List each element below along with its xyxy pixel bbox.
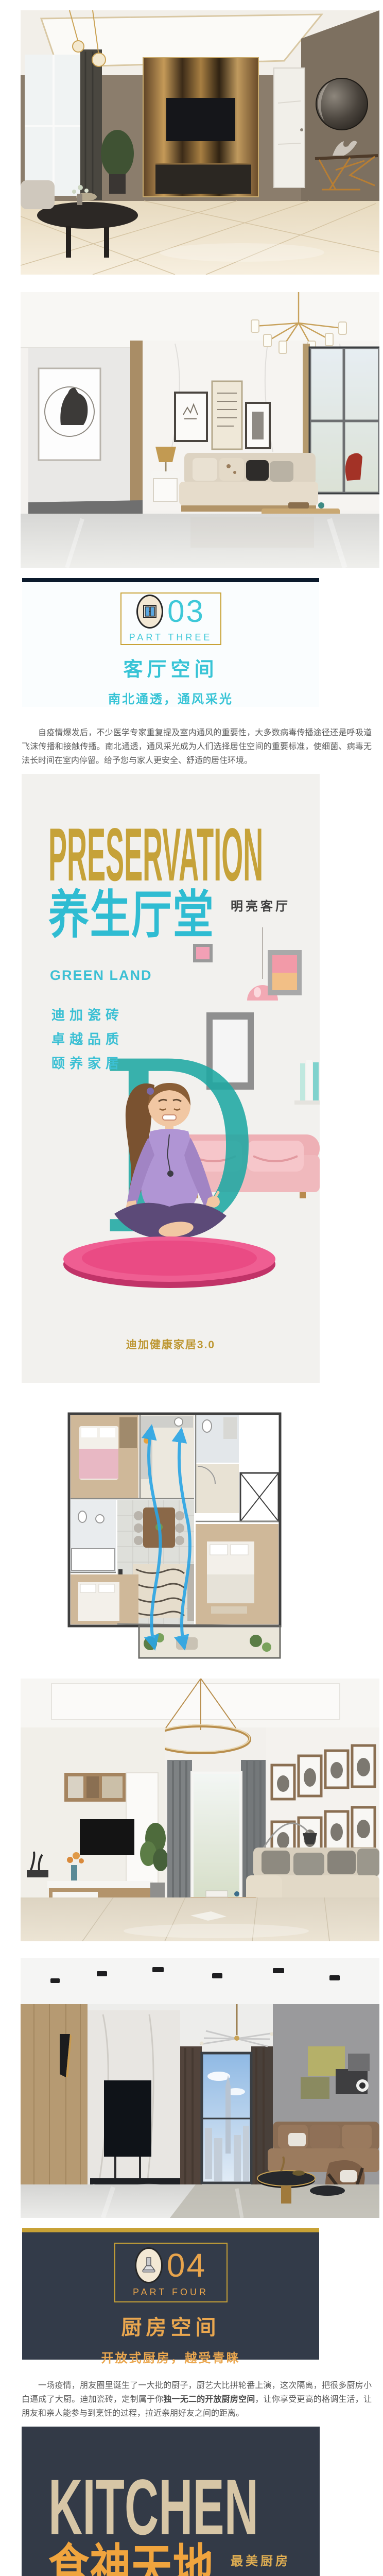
poster-preservation: D: [22, 774, 320, 1383]
living-room-photo-ring-chandelier: [21, 1679, 379, 1941]
poster-slogan-1: 迪加瓷砖: [51, 1008, 124, 1022]
living-room-photo-bright-render: [21, 292, 379, 568]
wall-shelf-books: [294, 1060, 320, 1105]
floor-plan-render: [22, 1394, 320, 1668]
sofa-edge: [21, 180, 55, 209]
living-room-photo-brown-render: [21, 10, 379, 275]
section04-subtitle: 开放式厨房，越受青睐: [22, 2348, 319, 2366]
living-room-photo-4-render: [21, 1958, 379, 2218]
section03-title: 客厅空间: [22, 653, 319, 682]
poster-slogan-2: 卓越品质: [51, 1032, 124, 1046]
section04-number: 04: [167, 2249, 206, 2282]
paragraph-kitchen-bold: 独一无二的开放厨房空间: [163, 2395, 255, 2404]
section03-part-label: PART THREE: [129, 632, 213, 643]
living-room-photo-bright: [21, 292, 379, 568]
range-hood-icon: [135, 2247, 163, 2283]
section04-top-bar: [22, 2228, 319, 2232]
poster-title-cn: 食神天地: [48, 2543, 258, 2576]
section03-top-bar: [22, 578, 319, 582]
tv: [104, 2080, 151, 2157]
window-with-sheer-curtain: [25, 49, 102, 200]
section04-title: 厨房空间: [22, 2311, 319, 2341]
marble-tv-wall: [88, 2010, 180, 2196]
poster-kitchen: K: [22, 2427, 320, 2576]
rug: [170, 2184, 379, 2218]
white-door: [274, 68, 305, 188]
section04-badge-box: 04 PART FOUR: [114, 2243, 228, 2302]
marble-tv-feature-wall: [143, 58, 258, 197]
section03-header: 03 PART THREE 客厅空间 南北通透，通风采光: [22, 582, 319, 707]
living-room-photo-brown: [21, 10, 379, 275]
poster-tag: 最美厨房: [231, 2555, 290, 2568]
poster-tag: 明亮客厅: [231, 901, 290, 913]
tv: [80, 1819, 134, 1855]
window-icon: [136, 595, 163, 629]
living-room-photo-modern-dark: [21, 1958, 379, 2218]
poster-footer: 迪加健康家居3.0: [22, 1336, 320, 1352]
horse-artwork: [39, 368, 100, 460]
tv: [166, 98, 235, 141]
article-page: 03 PART THREE 客厅空间 南北通透，通风采光 自疫情爆发后，不少医学…: [0, 0, 383, 2576]
poster-title-en: PRESERVATION: [48, 817, 320, 892]
living-room-photo-3-render: [21, 1679, 379, 1941]
poster-title-cn: 养生厅堂: [48, 889, 258, 941]
paragraph-living-room: 自疫情爆发后，不少医学专家重复提及室内通风的重要性，大多数病毒传播途径还是呼吸道…: [22, 726, 372, 768]
section04-header: 04 PART FOUR 厨房空间 开放式厨房，越受青睐: [22, 2232, 319, 2360]
section03-number: 03: [167, 596, 205, 627]
poster-title-en: KITCHEN: [48, 2468, 320, 2547]
leather-sofa: [268, 2122, 379, 2172]
tv-cabinet: [155, 164, 251, 194]
floor-plan-airflow-diagram: [22, 1394, 320, 1668]
section03-badge-box: 03 PART THREE: [120, 592, 221, 645]
round-wall-mirror: [316, 78, 368, 130]
paragraph-kitchen: 一场疫情，朋友圈里诞生了一大批的厨子，厨艺大比拼轮番上演，这次隔离，把很多厨房小…: [22, 2379, 372, 2420]
poster-brand-en: GREEN LAND: [50, 969, 152, 982]
wood-door-frame: [130, 341, 143, 511]
section04-part-label: PART FOUR: [133, 2287, 208, 2298]
window-city-view: [180, 2046, 273, 2187]
section03-subtitle: 南北通透，通风采光: [22, 689, 319, 707]
poster-slogan-3: 颐养家居: [51, 1057, 124, 1070]
